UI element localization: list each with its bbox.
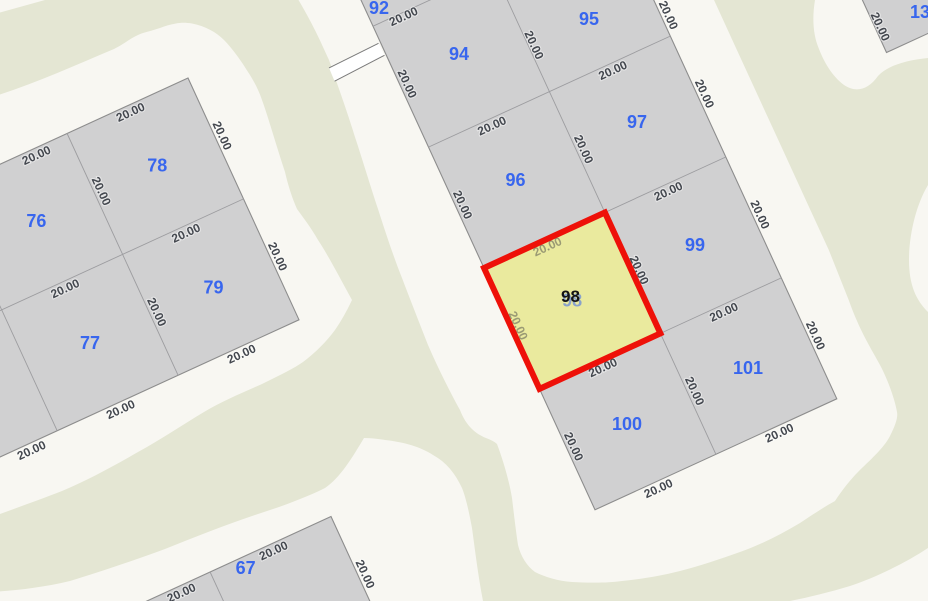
- svg-text:78: 78: [147, 156, 167, 176]
- svg-text:96: 96: [505, 170, 525, 190]
- svg-text:95: 95: [579, 9, 599, 29]
- svg-text:76: 76: [26, 211, 46, 231]
- svg-text:67: 67: [236, 558, 256, 578]
- svg-text:99: 99: [685, 235, 705, 255]
- svg-text:77: 77: [80, 333, 100, 353]
- svg-text:101: 101: [733, 358, 763, 378]
- svg-text:13: 13: [910, 2, 928, 22]
- svg-text:79: 79: [203, 278, 223, 298]
- svg-text:94: 94: [449, 44, 469, 64]
- svg-text:97: 97: [627, 112, 647, 132]
- svg-text:100: 100: [612, 414, 642, 434]
- svg-text:92: 92: [369, 0, 389, 18]
- svg-text:98: 98: [561, 287, 580, 306]
